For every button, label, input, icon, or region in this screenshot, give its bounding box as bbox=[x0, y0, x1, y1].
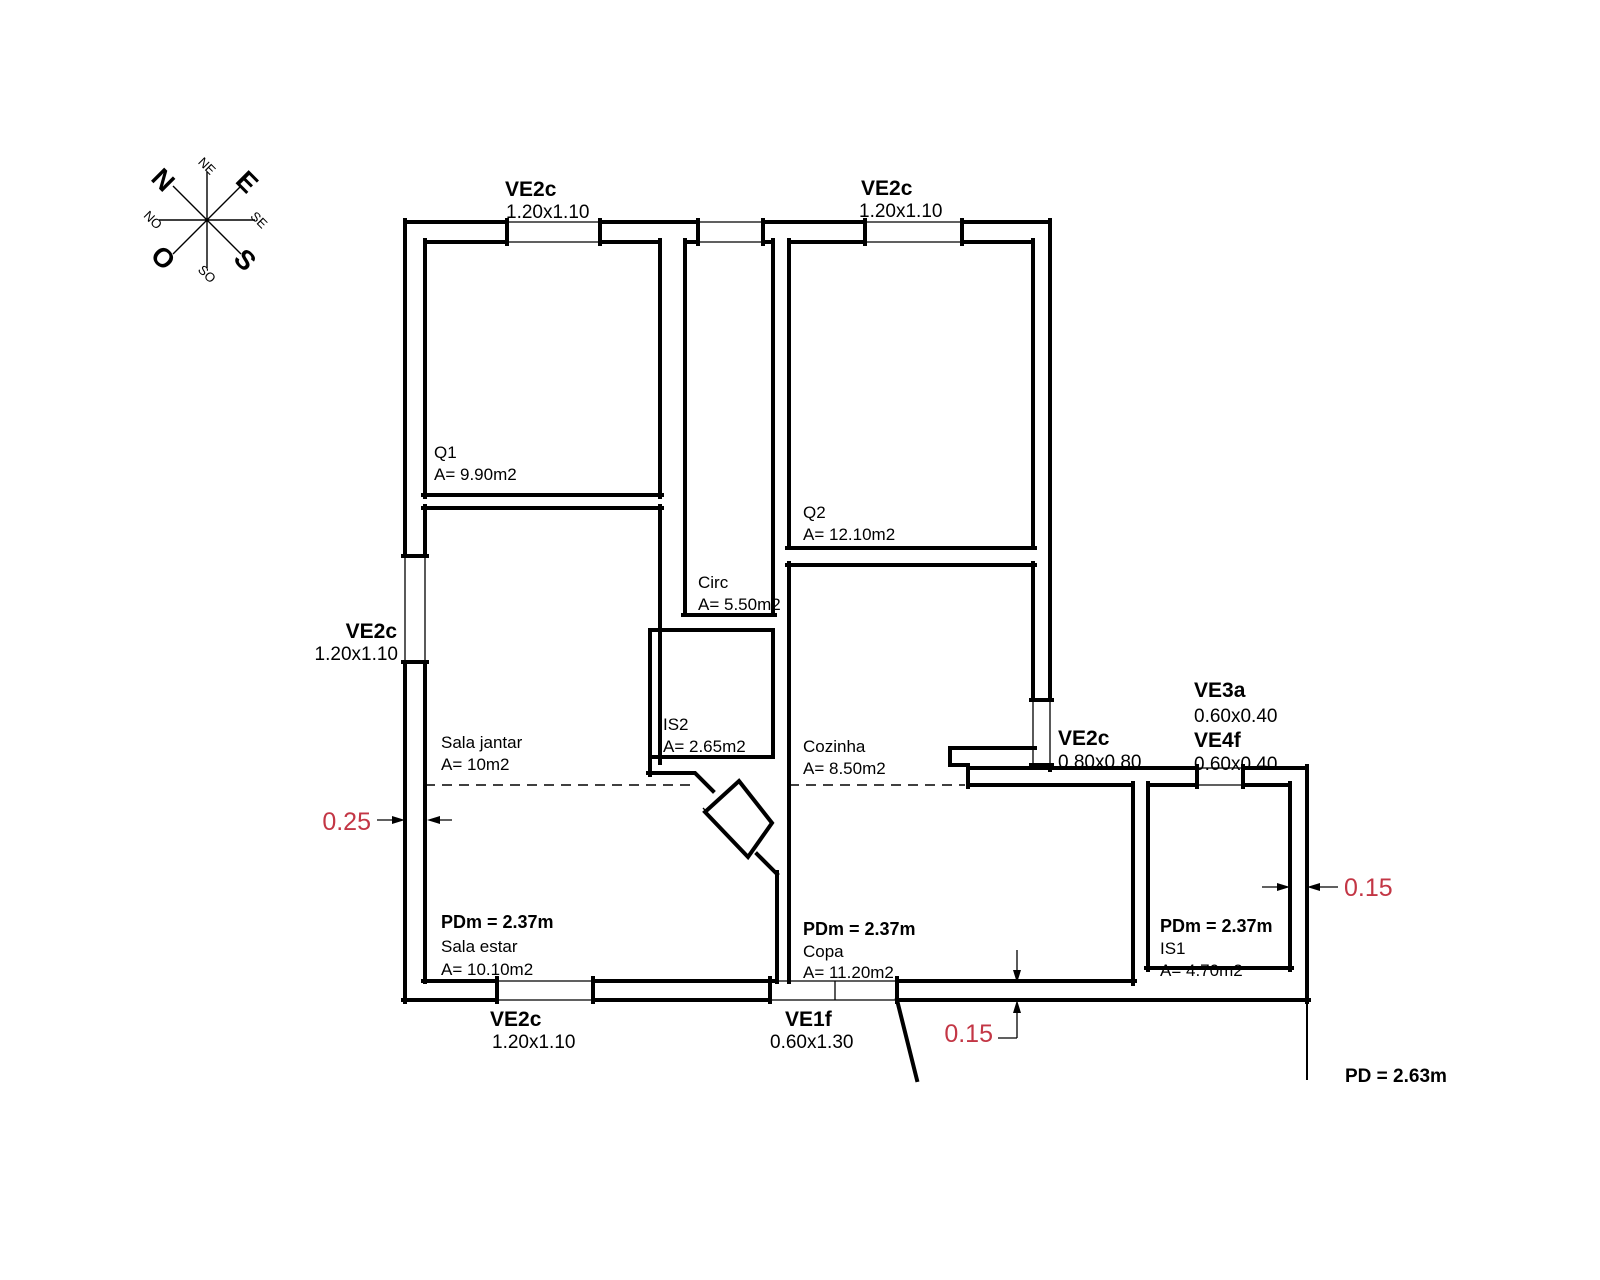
label-is2-area: A= 2.65m2 bbox=[663, 737, 746, 756]
label-ve2c-left-size: 1.20x1.10 bbox=[315, 644, 398, 665]
dim-015r-label: 0.15 bbox=[1344, 874, 1393, 902]
compass-rose: N E S O NE SE SO NO bbox=[141, 154, 271, 286]
label-ve2c-top-left-size: 1.20x1.10 bbox=[506, 202, 589, 223]
label-ve3a-size: 0.60x0.40 bbox=[1194, 706, 1277, 727]
floor-plan-page: N E S O NE SE SO NO bbox=[0, 0, 1600, 1280]
label-cozinha-area: A= 8.50m2 bbox=[803, 759, 886, 778]
label-is1-pdm: PDm = 2.37m bbox=[1160, 916, 1273, 936]
label-ve2c-right-size: 0.80x0.80 bbox=[1058, 752, 1141, 773]
label-q1-name: Q1 bbox=[434, 443, 457, 462]
label-ve2c-top-right-code: VE2c bbox=[861, 177, 913, 200]
label-ve2c-bottom-code: VE2c bbox=[490, 1008, 542, 1031]
label-copa-name: Copa bbox=[803, 942, 844, 961]
label-ve4f-code: VE4f bbox=[1194, 729, 1242, 752]
label-copa-area: A= 11.20m2 bbox=[803, 963, 894, 982]
label-ve2c-top-right-size: 1.20x1.10 bbox=[859, 201, 942, 222]
label-ve1f-size: 0.60x1.30 bbox=[770, 1032, 853, 1053]
label-q2-name: Q2 bbox=[803, 503, 826, 522]
label-is2-name: IS2 bbox=[663, 715, 689, 734]
label-sala-estar-area: A= 10.10m2 bbox=[441, 960, 533, 979]
label-circ-area: A= 5.50m2 bbox=[698, 595, 781, 614]
label-ve3a-code: VE3a bbox=[1194, 679, 1246, 702]
label-q2-area: A= 12.10m2 bbox=[803, 525, 895, 544]
label-ve1f-code: VE1f bbox=[785, 1008, 833, 1031]
label-sala-jantar-area: A= 10m2 bbox=[441, 755, 510, 774]
label-sala-estar-name: Sala estar bbox=[441, 937, 518, 956]
floor-plan-drawing: N E S O NE SE SO NO bbox=[0, 0, 1600, 1280]
label-ve2c-right-code: VE2c bbox=[1058, 727, 1110, 750]
label-circ-name: Circ bbox=[698, 573, 729, 592]
label-is1-name: IS1 bbox=[1160, 939, 1186, 958]
label-ve4f-size: 0.60x0.40 bbox=[1194, 754, 1277, 775]
label-cozinha-name: Cozinha bbox=[803, 737, 866, 756]
label-ve2c-bottom-size: 1.20x1.10 bbox=[492, 1032, 575, 1053]
label-ve2c-left-code: VE2c bbox=[346, 620, 398, 643]
label-copa-pdm: PDm = 2.37m bbox=[803, 919, 916, 939]
label-sala-estar-pdm: PDm = 2.37m bbox=[441, 912, 554, 932]
label-ve2c-top-left-code: VE2c bbox=[505, 178, 557, 201]
dim-025-label: 0.25 bbox=[322, 808, 371, 836]
label-is1-area: A= 4.70m2 bbox=[1160, 961, 1243, 980]
dim-015b-label: 0.15 bbox=[944, 1020, 993, 1048]
label-q1-area: A= 9.90m2 bbox=[434, 465, 517, 484]
ceiling-height-note: PD = 2.63m bbox=[1345, 1066, 1447, 1087]
label-sala-jantar-name: Sala jantar bbox=[441, 733, 523, 752]
